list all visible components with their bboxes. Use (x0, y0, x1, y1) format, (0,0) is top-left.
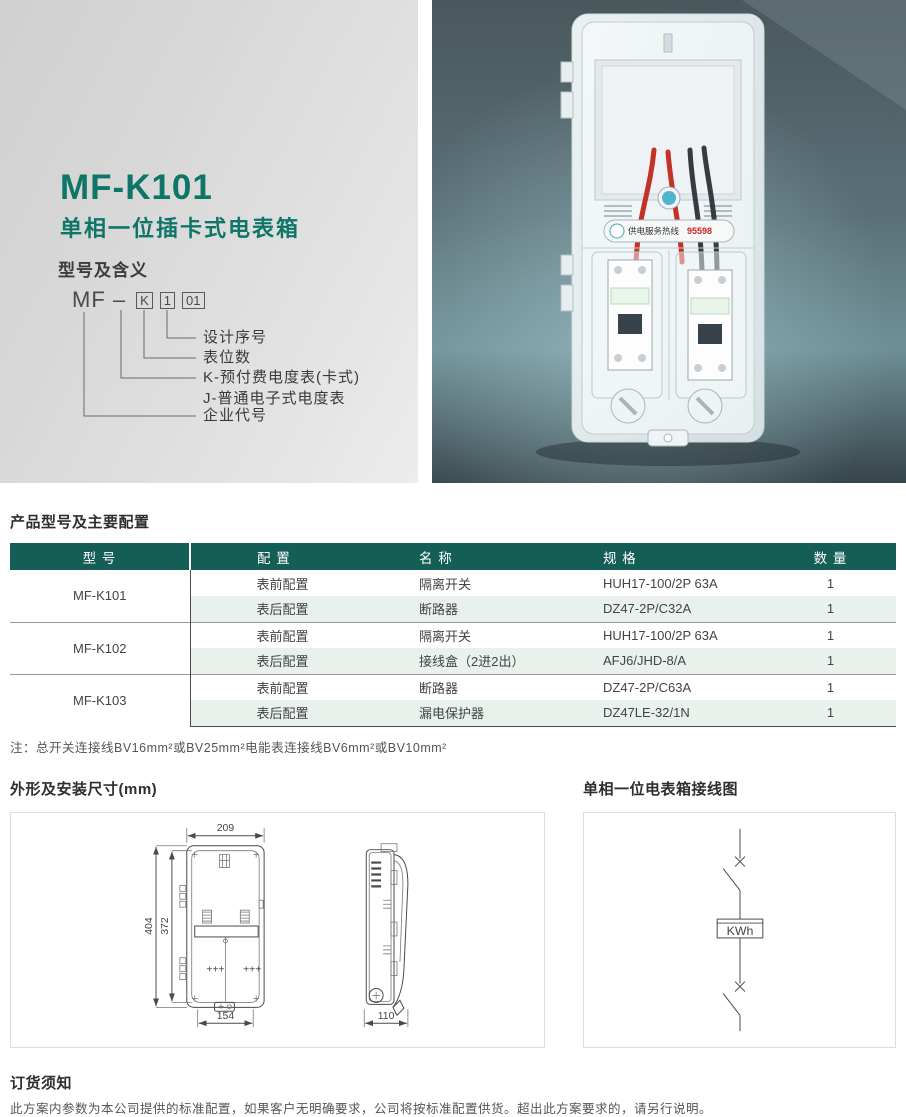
dimension-drawing: +++ +++ 209 404 372 (11, 813, 544, 1047)
config-cell: 表前配置 (190, 674, 390, 700)
header-model: 型 号 (10, 543, 190, 570)
config-cell: 表前配置 (190, 622, 390, 648)
wiring-panel: KWh (583, 812, 896, 1048)
qty-cell: 1 (765, 570, 896, 596)
hotline-text: 供电服务热线 (628, 226, 680, 236)
enclosure-shell: 供电服务热线 95598 (561, 14, 764, 446)
dim-overall-height: 404 (144, 917, 155, 935)
intro-panel: MF-K101 单相一位插卡式电表箱 型号及含义 MF – K 1 01 设计序… (0, 0, 418, 483)
config-cell: 表后配置 (190, 700, 390, 726)
config-table: 型 号 配 置 名 称 规 格 数 量 MF-K101 表前配置 隔离开关 HU… (10, 543, 896, 727)
header-qty: 数 量 (765, 543, 896, 570)
header-config: 配 置 (190, 543, 390, 570)
table-row: MF-K102 表前配置 隔离开关 HUH17-100/2P 63A 1 (10, 622, 896, 648)
spec-cell: AFJ6/JHD-8/A (575, 648, 765, 674)
config-table-title: 产品型号及主要配置 (10, 511, 150, 532)
spec-cell: DZ47-2P/C32A (575, 596, 765, 622)
spec-cell: DZ47-2P/C63A (575, 674, 765, 700)
side-view (366, 844, 408, 1016)
model-cell: MF-K103 (10, 674, 190, 726)
config-cell: 表前配置 (190, 570, 390, 596)
name-cell: 断路器 (390, 596, 575, 622)
right-breaker (688, 270, 732, 380)
ordering-note: 此方案内参数为本公司提供的标准配置，如果客户无明确要求，公司将按标准配置供货。超… (10, 1098, 712, 1117)
hotline-number: 95598 (687, 226, 712, 236)
header-spec: 规 格 (575, 543, 765, 570)
qty-cell: 1 (765, 596, 896, 622)
spec-cell: DZ47LE-32/1N (575, 700, 765, 726)
spec-cell: HUH17-100/2P 63A (575, 622, 765, 648)
qty-cell: 1 (765, 622, 896, 648)
model-cell: MF-K102 (10, 622, 190, 674)
code-label-k-type: K-预付费电度表(卡式) (203, 368, 360, 388)
breaker-blade-bottom (723, 993, 740, 1015)
dimensions-title: 外形及安装尺寸(mm) (10, 778, 157, 799)
table-footnote: 注：总开关连接线BV16mm²或BV25mm²电能表连接线BV6mm²或BV10… (10, 737, 447, 756)
catalog-page: MF-K101 单相一位插卡式电表箱 型号及含义 MF – K 1 01 设计序… (0, 0, 906, 1117)
name-cell: 隔离开关 (390, 570, 575, 596)
svg-text:+++: +++ (243, 965, 261, 976)
name-cell: 隔离开关 (390, 622, 575, 648)
table-row: MF-K101 表前配置 隔离开关 HUH17-100/2P 63A 1 (10, 570, 896, 596)
qty-cell: 1 (765, 674, 896, 700)
spec-cell: HUH17-100/2P 63A (575, 570, 765, 596)
qty-cell: 1 (765, 648, 896, 674)
config-cell: 表后配置 (190, 648, 390, 674)
meter-label: KWh (727, 924, 754, 938)
meter-box-illustration: 供电服务热线 95598 (432, 0, 906, 483)
front-view: +++ +++ (180, 846, 264, 1012)
table-header-row: 型 号 配 置 名 称 规 格 数 量 (10, 543, 896, 570)
breaker-blade-top (723, 869, 740, 891)
front-view-dimensions: 209 404 372 154 (144, 823, 264, 1027)
code-label-design-serial: 设计序号 (203, 328, 267, 348)
dim-top-width: 209 (217, 823, 235, 834)
config-cell: 表后配置 (190, 596, 390, 622)
qty-cell: 1 (765, 700, 896, 726)
dim-depth: 110 (378, 1011, 395, 1022)
dimensions-panel: +++ +++ 209 404 372 (10, 812, 545, 1048)
svg-text:+++: +++ (206, 965, 224, 976)
model-cell: MF-K101 (10, 570, 190, 622)
name-cell: 断路器 (390, 674, 575, 700)
dim-bottom-width: 154 (217, 1011, 235, 1022)
wiring-title: 单相一位电表箱接线图 (583, 778, 738, 799)
wiring-diagram: KWh (584, 813, 895, 1047)
dim-inner-height: 372 (160, 917, 171, 935)
side-view-dimensions: 110 (364, 1009, 408, 1027)
product-photo: 供电服务热线 95598 (432, 0, 906, 483)
code-label-meter-count: 表位数 (203, 348, 251, 368)
left-breaker (608, 260, 652, 370)
name-cell: 接线盒（2进2出） (390, 648, 575, 674)
code-label-company-code: 企业代号 (203, 406, 267, 426)
header-name: 名 称 (390, 543, 575, 570)
name-cell: 漏电保护器 (390, 700, 575, 726)
table-row: MF-K103 表前配置 断路器 DZ47-2P/C63A 1 (10, 674, 896, 700)
hotline-label: 供电服务热线 95598 (604, 220, 734, 242)
ordering-title: 订货须知 (10, 1072, 72, 1093)
